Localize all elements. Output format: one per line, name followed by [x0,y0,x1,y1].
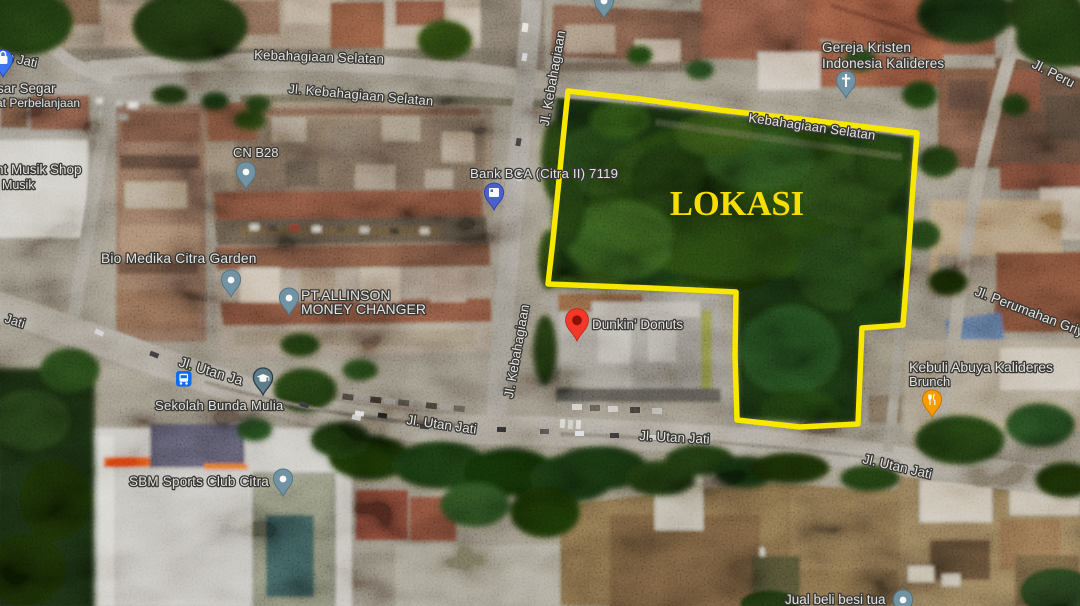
svg-text:Kebuli Abuya Kalideres: Kebuli Abuya Kalideres [909,359,1053,375]
svg-text:Bank BCA (Citra II) 7119: Bank BCA (Citra II) 7119 [470,166,618,181]
svg-text:Brunch: Brunch [909,374,950,389]
svg-text:t Musik: t Musik [0,178,35,192]
svg-text:Bio Medika Citra Garden: Bio Medika Citra Garden [101,251,257,266]
svg-text:Jual beli besi tua: Jual beli besi tua [785,592,886,606]
svg-text:Dunkin' Donuts: Dunkin' Donuts [592,317,683,332]
svg-text:Indonesia Kalideres: Indonesia Kalideres [822,56,944,71]
svg-text:SBM Sports Club Citra: SBM Sports Club Citra [129,474,269,489]
svg-text:sar Segar: sar Segar [0,81,56,96]
svg-text:LOKASI: LOKASI [670,185,804,223]
svg-text:nt Musik Shop: nt Musik Shop [0,162,82,177]
svg-text:Gereja Kristen: Gereja Kristen [822,40,911,55]
svg-text:Sekolah Bunda Mulia: Sekolah Bunda Mulia [155,398,284,413]
svg-text:at Perbelanjaan: at Perbelanjaan [0,96,80,110]
svg-text:CN B28: CN B28 [233,145,279,160]
svg-text:MONEY CHANGER: MONEY CHANGER [301,301,426,317]
